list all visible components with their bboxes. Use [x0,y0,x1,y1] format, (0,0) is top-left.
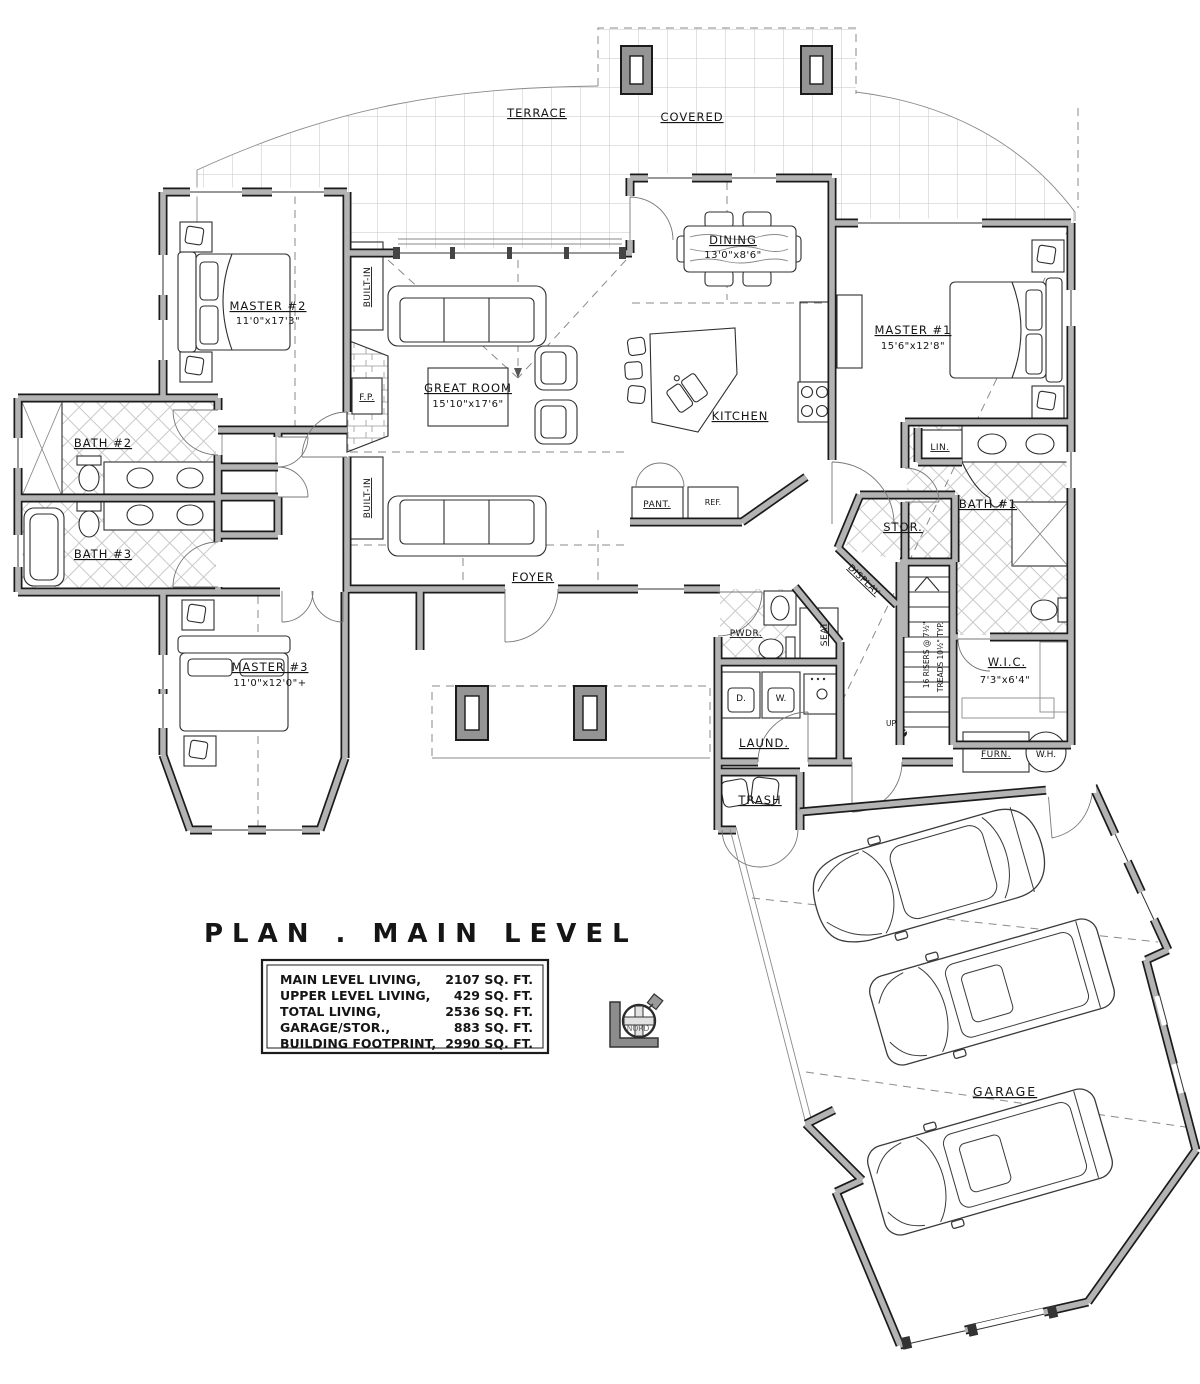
room-dims-great-room: 15'10"x17'6" [432,399,503,410]
room-label-master1: MASTER #1 [875,323,952,337]
area-row-value: 2107 SQ. FT. [445,972,533,987]
floor-plan-page: TERRACE COVERED MASTER #2 11'0"x17'3" BU… [0,0,1200,1384]
area-row-value: 883 SQ. FT. [454,1020,533,1035]
room-label-master2: MASTER #2 [230,299,307,313]
room-label-garage: GARAGE [973,1084,1037,1099]
area-row-value: 429 SQ. FT. [454,988,533,1003]
room-label-kitchen: KITCHEN [712,409,769,423]
room-label-great-room: GREAT ROOM [424,381,512,395]
room-label-master3: MASTER #3 [232,660,309,674]
area-row-label: BUILDING FOOTPRINT, [280,1036,436,1051]
label-built-in-top: BUILT-IN [363,267,373,308]
entry-porch [432,686,710,758]
label-pantry: PANT. [643,500,671,510]
label-stairs-treads: TREADS 10½" TYP. [936,622,945,693]
room-dims-dining: 13'0"x8'6" [704,250,761,261]
label-stairs-risers: 16 RISERS @ 7½" [922,622,931,689]
room-label-dining: DINING [709,233,757,247]
north-arrow-icon: NORD [610,994,663,1047]
garage [730,781,1196,1350]
north-arrow-label: NORD [627,1024,650,1033]
room-label-foyer: FOYER [512,570,554,584]
label-dryer: D. [736,694,746,704]
area-row-label: TOTAL LIVING, [280,1004,381,1019]
room-label-bath3: BATH #3 [74,547,132,561]
area-row-value: 2990 SQ. FT. [445,1036,533,1051]
label-fireplace: F.P. [359,393,374,403]
plan-title: PLAN . MAIN LEVEL [204,919,638,949]
room-label-wic: W.I.C. [988,655,1026,669]
car-sedan [802,793,1056,959]
room-dims-master1: 15'6"x12'8" [881,341,945,352]
room-label-powder: PWDR. [730,629,763,639]
room-label-covered: COVERED [660,110,723,124]
label-built-in-bottom: BUILT-IN [363,478,373,519]
label-stairs-up: UP [886,719,896,728]
room-dims-master3: 11'0"x12'0"+ [233,678,306,689]
room-label-terrace: TERRACE [506,106,567,120]
room-label-trash: TRASH [737,793,781,807]
car-suv-2 [862,1078,1119,1247]
room-dims-wic: 7'3"x6'4" [980,675,1031,686]
patio-post [621,46,652,94]
label-seat: SEAT [820,622,830,646]
room-label-bath1: BATH #1 [959,497,1017,511]
label-furnace: FURN. [981,750,1011,760]
floor-plan-drawing: TERRACE COVERED MASTER #2 11'0"x17'3" BU… [0,0,1200,1384]
room-label-laundry: LAUND. [739,736,789,750]
room-label-storage: STOR. [883,520,923,534]
label-fridge: REF. [705,498,721,507]
area-row-label: UPPER LEVEL LIVING, [280,988,430,1003]
label-water-heater: W.H. [1036,750,1056,760]
title-block: PLAN . MAIN LEVEL MAIN LEVEL LIVING, 210… [204,919,638,1053]
vault-arrow [514,368,522,378]
room-dims-master2: 11'0"x17'3" [236,316,300,327]
room-label-bath2: BATH #2 [74,436,132,450]
area-row-label: GARAGE/STOR., [280,1020,390,1035]
patio-post [801,46,832,94]
area-row-label: MAIN LEVEL LIVING, [280,972,421,987]
area-row-value: 2536 SQ. FT. [445,1004,533,1019]
label-linen: LIN. [930,443,949,453]
label-washer: W. [776,694,787,704]
